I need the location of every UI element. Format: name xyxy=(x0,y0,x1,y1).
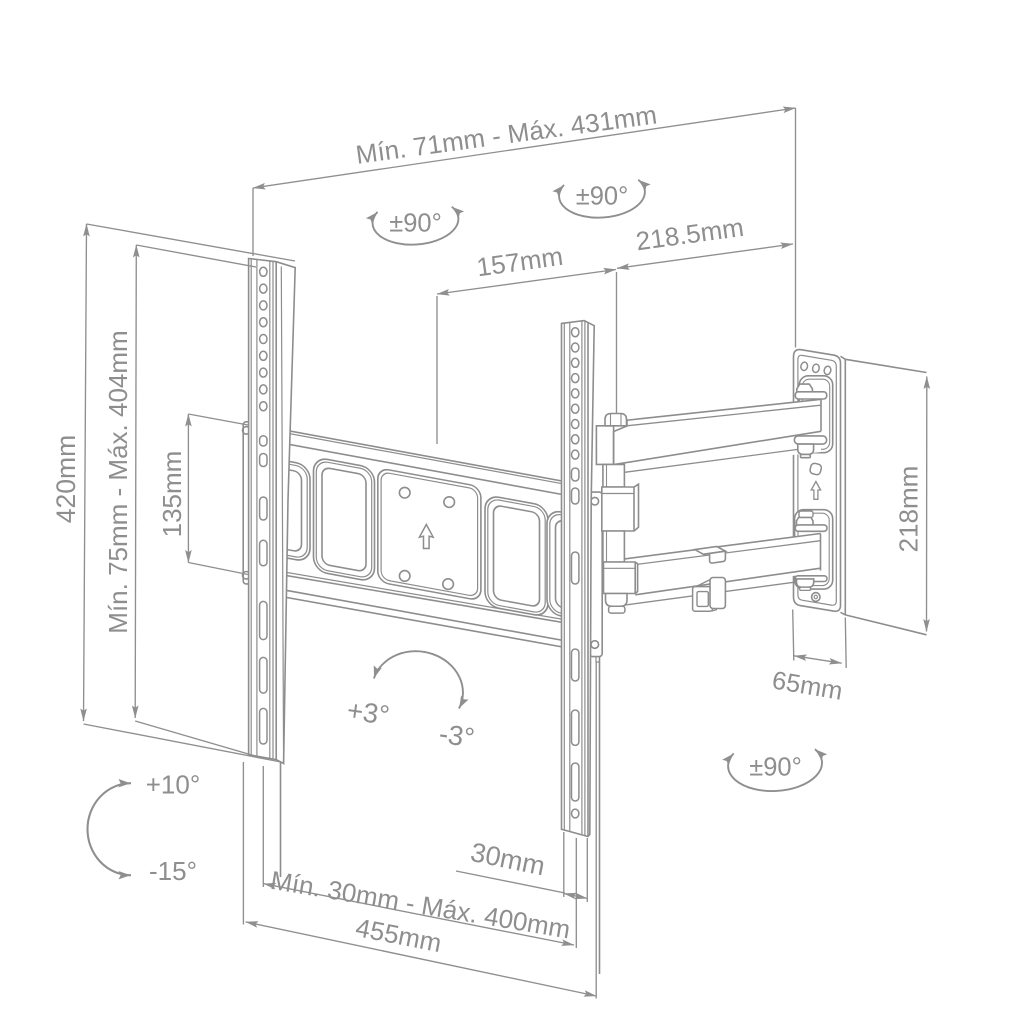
svg-text:218mm: 218mm xyxy=(894,466,924,553)
svg-text:±90°: ±90° xyxy=(576,183,629,211)
svg-text:-3°: -3° xyxy=(437,718,476,754)
svg-text:+3°: +3° xyxy=(345,694,391,731)
svg-text:Mín. 75mm - Máx. 404mm: Mín. 75mm - Máx. 404mm xyxy=(103,330,133,633)
svg-text:420mm: 420mm xyxy=(51,435,81,523)
svg-text:±90°: ±90° xyxy=(389,210,442,238)
svg-text:135mm: 135mm xyxy=(157,451,187,538)
svg-text:-15°: -15° xyxy=(149,856,197,886)
svg-text:+10°: +10° xyxy=(146,770,201,800)
svg-text:±90°: ±90° xyxy=(749,754,802,782)
